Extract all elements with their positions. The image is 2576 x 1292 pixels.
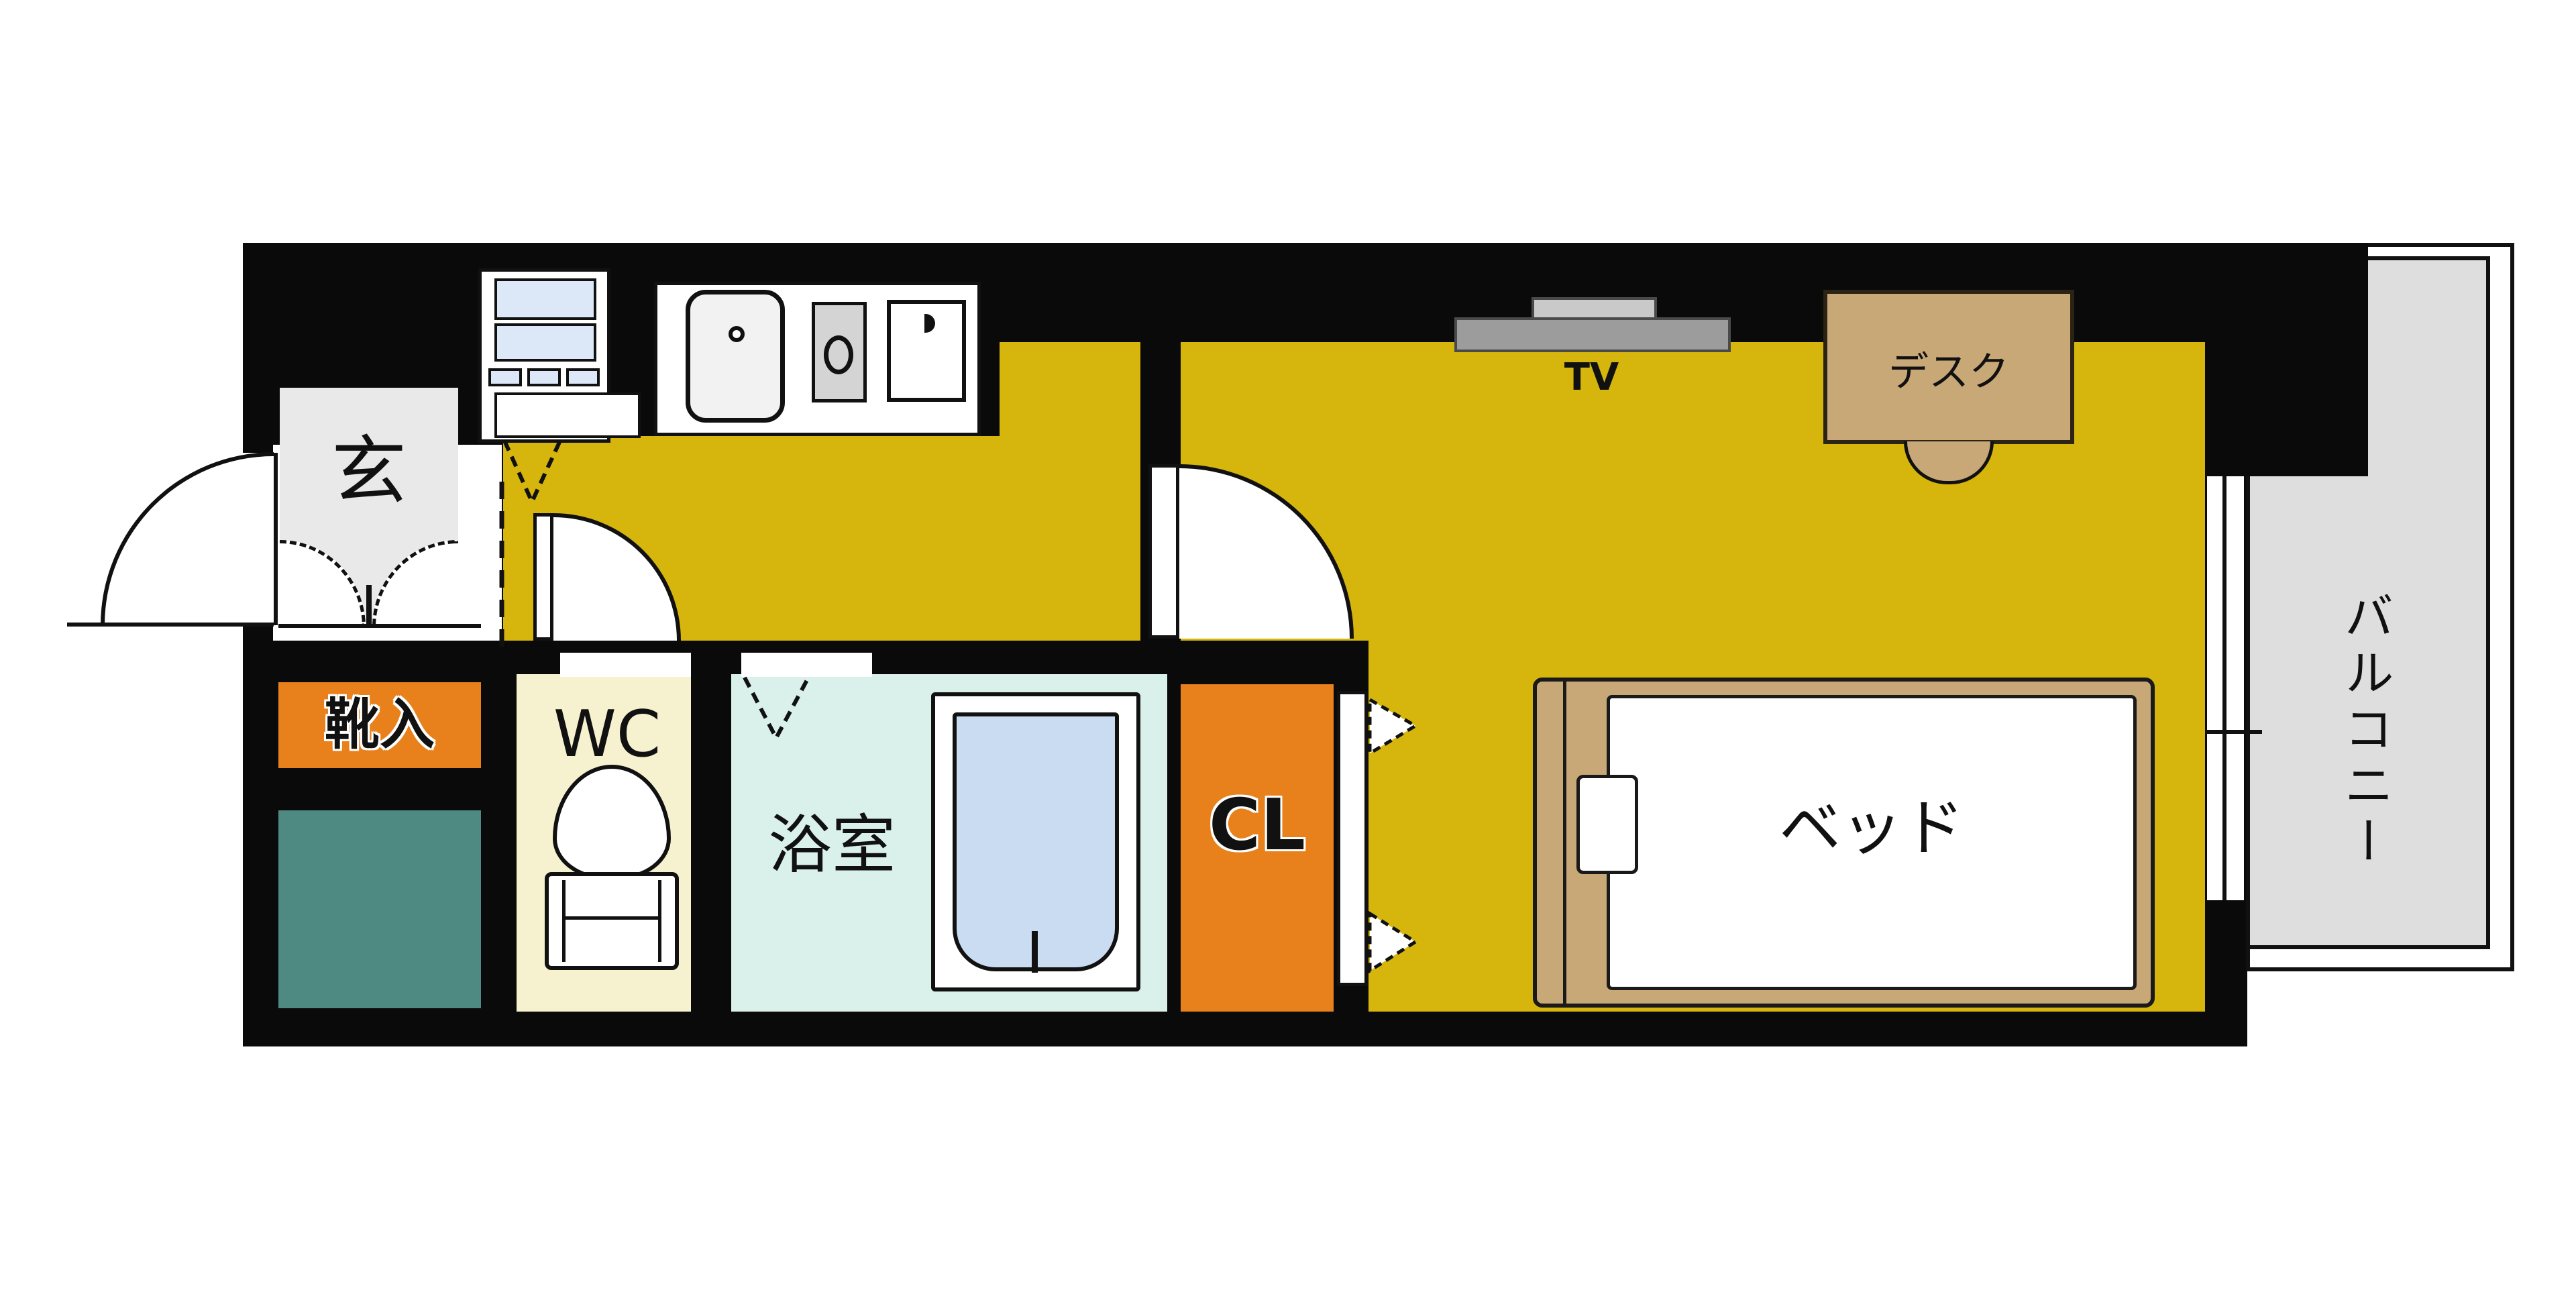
closet-folding-door-lower <box>1370 914 1415 971</box>
nook-door-swing-dashed <box>504 441 560 502</box>
floor-plan: バルコニー 玄 靴入 WC 浴室 CL <box>0 0 2576 1292</box>
bathroom-door-swing-dashed <box>745 678 808 738</box>
dashed-indicators-overlay <box>0 0 2576 1292</box>
closet-folding-door-upper <box>1370 700 1415 753</box>
